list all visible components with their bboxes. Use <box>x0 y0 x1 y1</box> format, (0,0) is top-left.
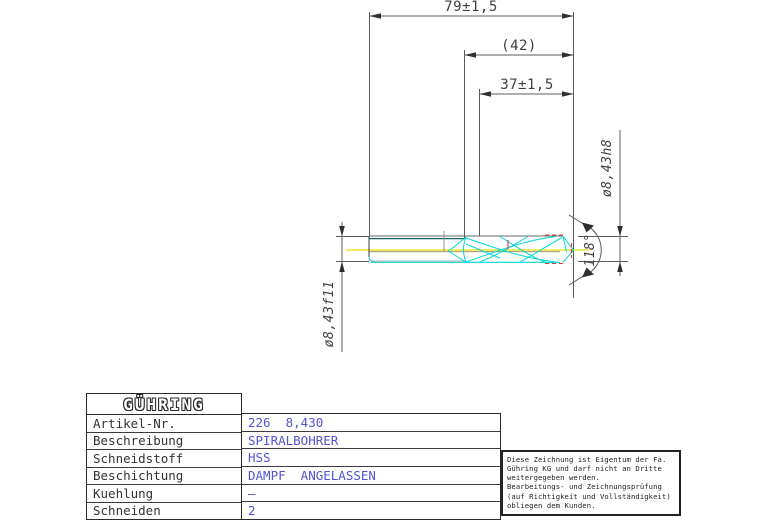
dim-point-angle-label: 118° <box>583 233 598 266</box>
disclaimer-line: (auf Richtigkeit und Vollständigkeit) <box>507 492 675 501</box>
cad-drawing-page: 79±1,5 (42) 37±1,5 ø8,43f11 ø8,43h8 118°… <box>0 0 767 523</box>
row-label-schneiden: Schneiden <box>87 503 241 520</box>
row-value-schneiden: 2 <box>242 502 500 519</box>
row-value-beschichtung: DAMPF ANGELASSEN <box>242 467 500 485</box>
row-label-kuehlung: Kuehlung <box>87 485 241 503</box>
row-value-kuehlung: – <box>242 485 500 503</box>
dim-body-diameter-label: ø8,43h8 <box>600 139 615 197</box>
row-label-artikel-nr: Artikel-Nr. <box>87 415 241 433</box>
row-label-schneidstoff: Schneidstoff <box>87 450 241 468</box>
dim-shank-diameter-label: ø8,43f11 <box>322 281 337 348</box>
row-value-schneidstoff: HSS <box>242 449 500 467</box>
disclaimer-line: weitergegeben werden. <box>507 473 675 482</box>
row-label-beschichtung: Beschichtung <box>87 468 241 486</box>
row-value-artikel-nr: 226 8,430 <box>242 414 500 432</box>
title-block-value-column: 226 8,430 SPIRALBOHRER HSS DAMPF ANGELAS… <box>242 413 501 520</box>
drill-drawing <box>346 231 589 264</box>
row-value-beschreibung: SPIRALBOHRER <box>242 432 500 450</box>
disclaimer-line: Bearbeitungs- und Zeichnungsprüfung <box>507 482 675 491</box>
dimension-arrowheads <box>339 13 623 277</box>
disclaimer-line: Diese Zeichnung ist Eigentum der Fa. <box>507 455 675 464</box>
dim-usable-length-label: 37±1,5 <box>500 77 554 93</box>
dim-overall-length-label: 79±1,5 <box>444 0 498 15</box>
disclaimer-line: Gühring KG und darf nicht an Dritte <box>507 464 675 473</box>
row-label-beschreibung: Beschreibung <box>87 433 241 451</box>
logo-cell: GÜHRING <box>87 394 241 415</box>
title-block-label-column: GÜHRING Artikel-Nr. Beschreibung Schneid… <box>86 393 242 520</box>
disclaimer-box: Diese Zeichnung ist Eigentum der Fa. Güh… <box>501 450 681 516</box>
disclaimer-line: obliegen dem Kunden. <box>507 501 675 510</box>
guehring-logo: GÜHRING <box>123 395 204 414</box>
dimension-lines <box>336 12 628 352</box>
dim-flute-length-label: (42) <box>501 38 537 54</box>
